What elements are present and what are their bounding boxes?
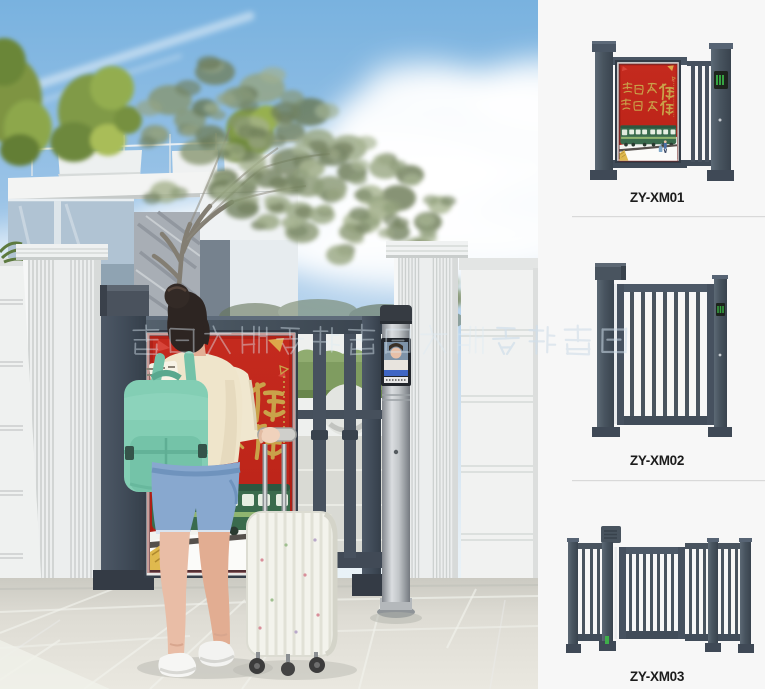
svg-text:ZY-XM02: ZY-XM02 <box>630 453 684 468</box>
svg-text:ZY-XM03: ZY-XM03 <box>630 669 685 684</box>
svg-text:ZY-XM01: ZY-XM01 <box>630 190 685 205</box>
